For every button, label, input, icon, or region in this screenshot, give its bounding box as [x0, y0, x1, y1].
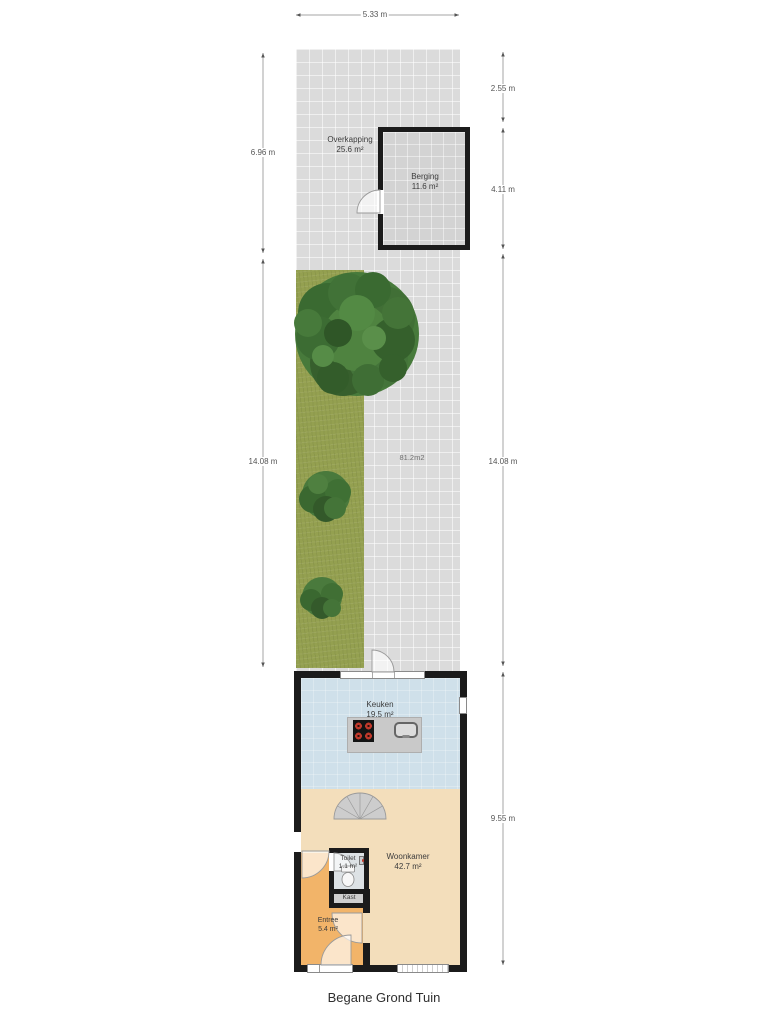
kitchen-side-window [459, 697, 467, 714]
toilet-door-opening [329, 853, 334, 871]
front-door [307, 964, 353, 973]
small-bush [294, 570, 350, 626]
room-name: Toilet [339, 855, 357, 863]
berging-label: Berging 11.6 m² [411, 172, 439, 193]
medium-bush-icon [293, 464, 359, 530]
side-door-opening [294, 832, 301, 852]
cooktop-icon [353, 720, 374, 742]
room-name: Keuken [366, 700, 393, 710]
room-name: Overkapping [327, 135, 372, 145]
room-area: 1.1 m² [339, 863, 357, 871]
dim-label-right-house: 9.55 m [489, 814, 517, 823]
berging-door-opening [377, 190, 384, 214]
dim-label-left-upper: 6.96 m [249, 148, 277, 157]
keuken-label: Keuken 19.5 m² [366, 700, 393, 721]
tuin-area-label: 81.2m2 [399, 453, 424, 463]
room-area: 42.7 m² [387, 862, 430, 872]
window-mullion [372, 672, 373, 678]
woonkamer-label: Woonkamer 42.7 m² [387, 852, 430, 873]
overkapping-label: Overkapping 25.6 m² [327, 135, 372, 156]
room-area: 25.6 m² [327, 145, 372, 155]
window-mullion [394, 672, 395, 678]
large-tree-icon [278, 258, 436, 416]
room-name: Entree [318, 916, 339, 925]
plan-title: Begane Grond Tuin [328, 990, 441, 1005]
dim-label-right-upper: 2.55 m [489, 84, 517, 93]
radiator-valve-icon [362, 859, 365, 862]
entree-divider-wall-lower [363, 943, 370, 967]
large-tree [278, 258, 436, 416]
small-bush-icon [294, 570, 350, 626]
kast-label: Kast [342, 894, 355, 902]
door-frame-divider [319, 965, 320, 972]
faucet-icon [403, 735, 410, 738]
floorplan-canvas: Overkapping 25.6 m² Berging 11.6 m² 81.2… [0, 0, 768, 1024]
toilet-radiator-icon [359, 856, 364, 865]
dim-label-right-garden: 14.08 m [487, 457, 520, 466]
room-area: 19.5 m² [366, 710, 393, 720]
dim-label-top-width: 5.33 m [361, 10, 389, 19]
room-area: 81.2m2 [399, 453, 424, 463]
dim-label-left-garden: 14.08 m [247, 457, 280, 466]
room-name: Woonkamer [387, 852, 430, 862]
toilet-label: Toilet 1.1 m² [339, 855, 357, 871]
entree-divider-wall-upper [363, 889, 370, 913]
entree-label: Entree 5.4 m² [318, 916, 339, 934]
room-name: Berging [411, 172, 439, 182]
front-window [397, 964, 449, 973]
room-area: 5.4 m² [318, 925, 339, 934]
garden-sliding-door [340, 671, 425, 679]
sink-icon [394, 722, 418, 738]
dim-label-right-berging: 4.11 m [489, 185, 517, 194]
medium-bush [293, 464, 359, 530]
room-area: 11.6 m² [411, 182, 439, 192]
room-name: Kast [342, 894, 355, 902]
